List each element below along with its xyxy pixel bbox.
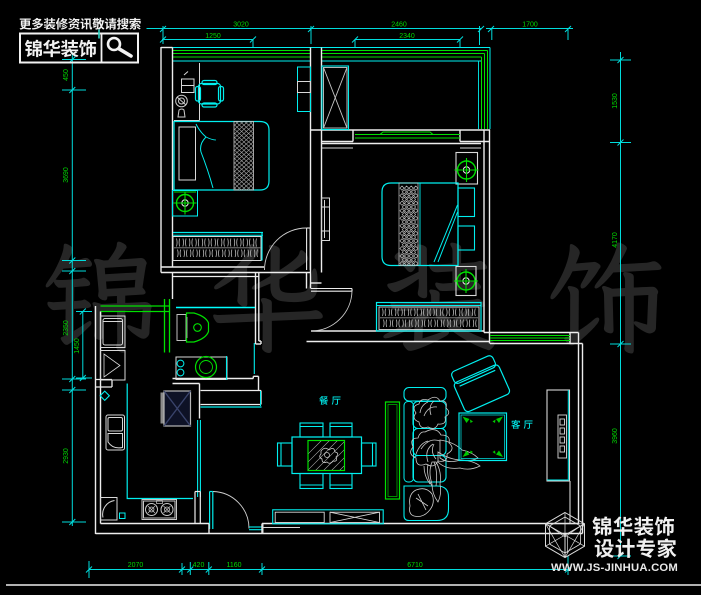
svg-text:1700: 1700 [522,22,538,29]
svg-text:6710: 6710 [407,562,423,569]
svg-text:420: 420 [193,562,205,569]
svg-text:1160: 1160 [226,562,241,569]
svg-text:1450: 1450 [74,338,81,354]
svg-text:1250: 1250 [205,33,221,40]
svg-text:2460: 2460 [391,22,407,29]
svg-text:450: 450 [63,69,70,81]
svg-text:2930: 2930 [63,448,70,464]
svg-text:4170: 4170 [612,232,619,248]
svg-text:2340: 2340 [399,33,415,40]
svg-text:2350: 2350 [63,320,70,336]
svg-text:3960: 3960 [612,428,619,444]
svg-text:3690: 3690 [63,167,70,183]
svg-text:1530: 1530 [612,93,619,109]
svg-text:2070: 2070 [128,562,144,569]
svg-text:3020: 3020 [233,22,249,29]
svg-text:WWW.JS-JINHUA.COM: WWW.JS-JINHUA.COM [551,562,678,574]
